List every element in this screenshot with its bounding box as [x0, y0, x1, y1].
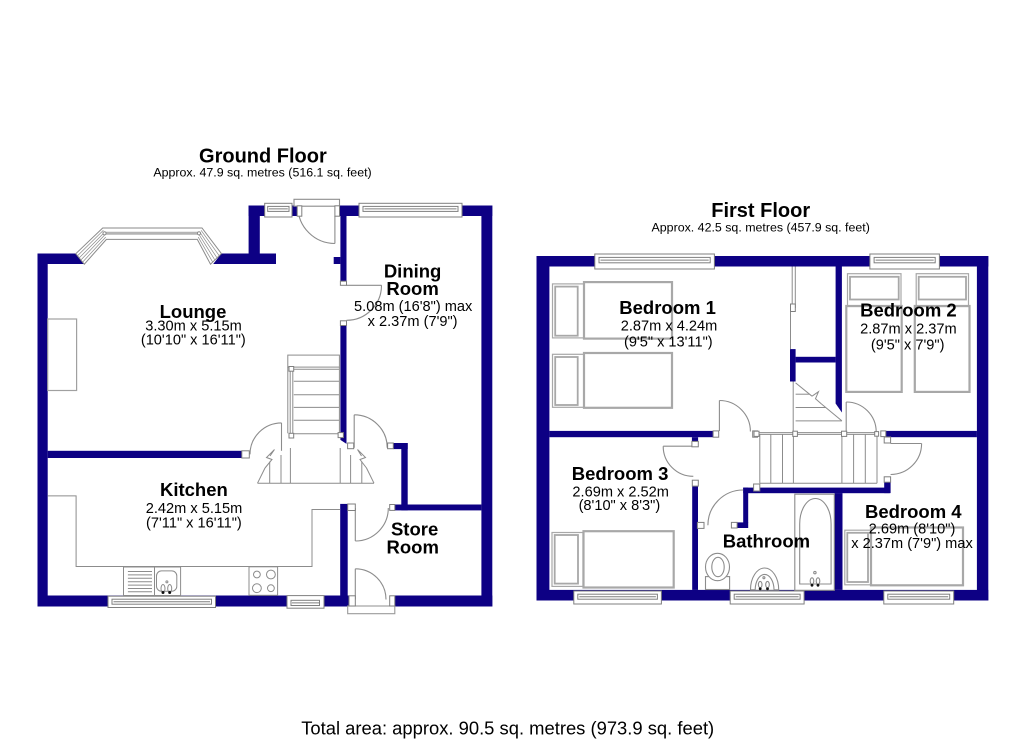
svg-text:(9'5" x 13'11"): (9'5" x 13'11") [624, 334, 713, 350]
svg-text:(9'5" x 7'9"): (9'5" x 7'9") [871, 338, 945, 354]
svg-text:(10'10" x 16'11"): (10'10" x 16'11") [141, 333, 246, 349]
svg-text:5.08m (16'8") max: 5.08m (16'8") max [354, 299, 473, 315]
svg-text:2.87m x 2.37m: 2.87m x 2.37m [860, 321, 957, 337]
svg-text:(8'10" x 8'3"): (8'10" x 8'3") [579, 498, 661, 514]
svg-text:Total area: approx. 90.5 sq. m: Total area: approx. 90.5 sq. metres (973… [301, 718, 714, 739]
svg-text:Ground Floor: Ground Floor [199, 145, 327, 167]
svg-text:(7'11" x 16'11"): (7'11" x 16'11") [146, 516, 242, 532]
svg-text:Room: Room [386, 278, 438, 299]
svg-text:2.42m x 5.15m: 2.42m x 5.15m [146, 501, 243, 517]
svg-text:Room: Room [386, 537, 438, 558]
svg-text:Bedroom 2: Bedroom 2 [860, 299, 957, 320]
svg-text:2.87m x 4.24m: 2.87m x 4.24m [621, 319, 718, 335]
svg-text:Approx. 47.9 sq. metres (516.1: Approx. 47.9 sq. metres (516.1 sq. feet) [153, 166, 371, 180]
svg-text:Kitchen: Kitchen [160, 479, 228, 500]
svg-text:Approx. 42.5 sq. metres (457.9: Approx. 42.5 sq. metres (457.9 sq. feet) [652, 221, 870, 235]
svg-text:x 2.37m (7'9") max: x 2.37m (7'9") max [851, 536, 973, 552]
svg-text:Bedroom 1: Bedroom 1 [619, 297, 716, 318]
svg-text:x 2.37m (7'9"): x 2.37m (7'9") [368, 314, 458, 330]
svg-text:2.69m (8'10"): 2.69m (8'10") [869, 521, 956, 537]
svg-text:First Floor: First Floor [711, 200, 810, 222]
svg-text:Bedroom 3: Bedroom 3 [572, 463, 669, 484]
svg-text:Bedroom 4: Bedroom 4 [865, 501, 962, 522]
svg-text:Bathroom: Bathroom [723, 531, 810, 552]
